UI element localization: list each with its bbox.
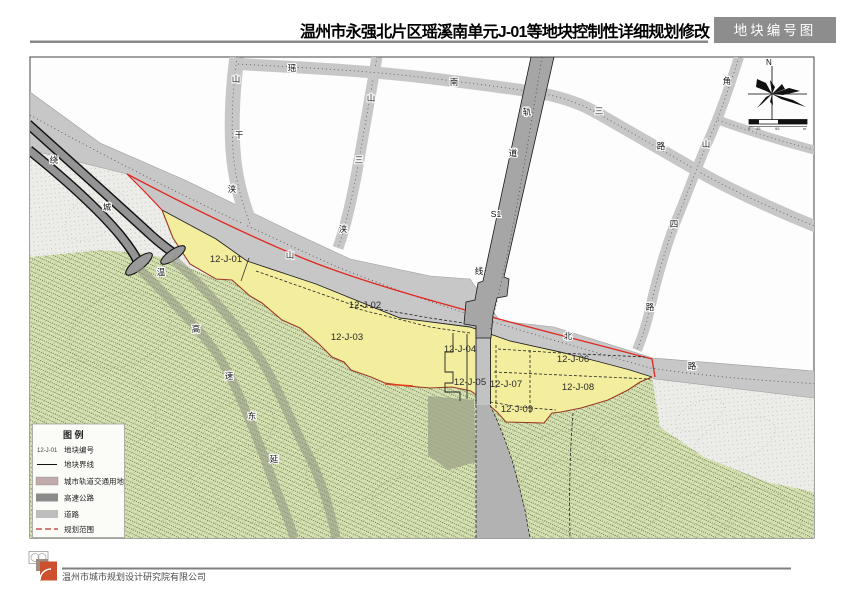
svg-text:城: 城 [103, 202, 112, 212]
svg-text:规划范围: 规划范围 [64, 524, 94, 534]
svg-text:南: 南 [450, 77, 459, 87]
svg-text:地块编号: 地块编号 [64, 445, 94, 455]
svg-text:山: 山 [232, 74, 241, 84]
svg-text:S1: S1 [491, 209, 502, 219]
svg-text:12-J-04: 12-J-04 [444, 344, 476, 355]
svg-text:山: 山 [367, 93, 376, 103]
svg-text:延: 延 [270, 454, 279, 464]
svg-text:12-J-07: 12-J-07 [490, 379, 522, 390]
svg-text:45: 45 [756, 126, 761, 131]
svg-text:角: 角 [723, 76, 732, 86]
svg-text:12-J-05: 12-J-05 [454, 377, 486, 388]
svg-text:三: 三 [595, 106, 604, 116]
svg-text:12-J-08: 12-J-08 [562, 382, 594, 393]
svg-text:12-J-01: 12-J-01 [37, 448, 58, 454]
svg-text:四: 四 [670, 219, 679, 229]
svg-text:温州市永强北片区瑶溪南单元J-01等地块控制性详细规划修改: 温州市永强北片区瑶溪南单元J-01等地块控制性详细规划修改 [299, 22, 711, 41]
svg-text:高: 高 [192, 324, 201, 334]
svg-text:绕: 绕 [50, 155, 59, 165]
svg-text:三: 三 [355, 155, 364, 165]
svg-text:95: 95 [775, 126, 780, 131]
svg-text:浃: 浃 [339, 224, 348, 234]
svg-text:山: 山 [286, 250, 295, 260]
svg-text:12-J-03: 12-J-03 [331, 332, 363, 343]
svg-text:路: 路 [657, 141, 666, 151]
svg-text:道路: 道路 [64, 509, 79, 519]
svg-text:地块界线: 地块界线 [64, 459, 94, 469]
svg-text:路: 路 [646, 302, 655, 312]
svg-text:北: 北 [564, 331, 573, 341]
svg-text:12-J-01: 12-J-01 [210, 254, 242, 265]
svg-text:高速公路: 高速公路 [64, 493, 94, 503]
svg-text:12-J-09: 12-J-09 [501, 404, 533, 415]
svg-text:温州市城市规划设计研究院有限公司: 温州市城市规划设计研究院有限公司 [62, 571, 206, 582]
svg-text:道: 道 [509, 148, 518, 158]
svg-text:东: 东 [248, 411, 257, 421]
svg-text:城市轨道交通用地: 城市轨道交通用地 [64, 476, 124, 486]
svg-text:12-J-02: 12-J-02 [349, 300, 381, 311]
svg-text:N: N [766, 58, 772, 67]
svg-text:浃: 浃 [228, 184, 237, 194]
svg-text:瑶: 瑶 [288, 63, 297, 73]
svg-text:线: 线 [475, 266, 484, 276]
svg-text:速: 速 [225, 371, 234, 381]
svg-text:12-J-06: 12-J-06 [557, 354, 589, 365]
svg-text:路: 路 [688, 361, 697, 371]
svg-text:轨: 轨 [523, 107, 532, 117]
svg-text:地块编号图: 地块编号图 [734, 23, 817, 38]
svg-text:干: 干 [235, 130, 244, 140]
svg-text:温: 温 [157, 267, 166, 277]
svg-text:图 例: 图 例 [63, 429, 84, 440]
svg-text:山: 山 [702, 139, 711, 149]
